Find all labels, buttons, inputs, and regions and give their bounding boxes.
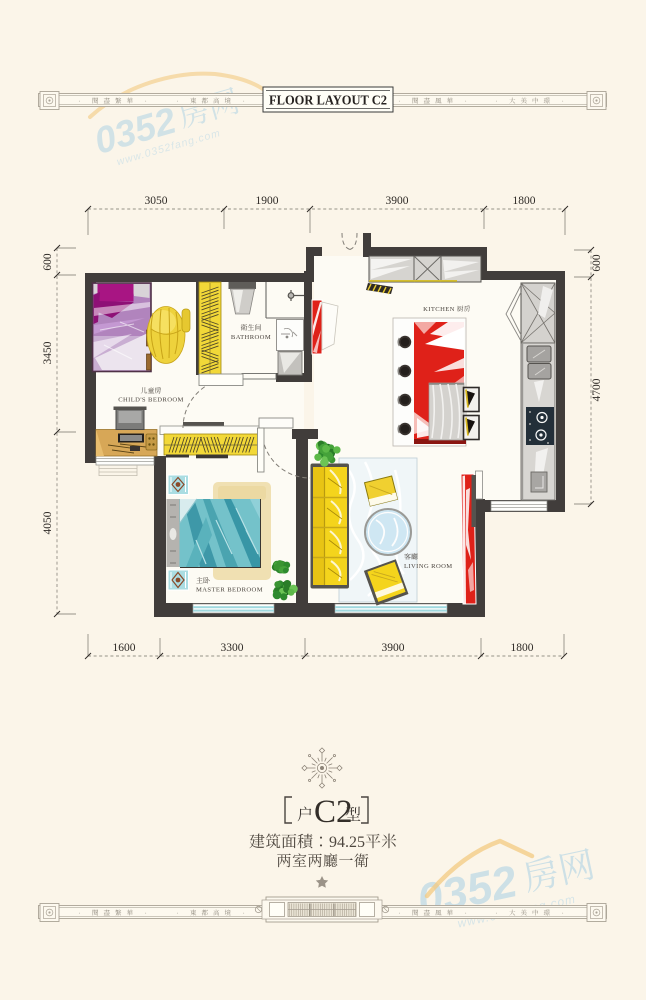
svg-text:4700: 4700	[591, 378, 603, 401]
svg-text:· 大美中璟 ·: · 大美中璟 ·	[495, 96, 569, 105]
svg-text:· 閱盡繁華 ·: · 閱盡繁華 ·	[78, 908, 152, 917]
svg-text:儿童房: 儿童房	[141, 386, 162, 396]
svg-text:BATHROOM: BATHROOM	[231, 334, 271, 341]
svg-text:建筑面積：94.25平米: 建筑面積：94.25平米	[249, 829, 397, 852]
svg-text:· 閱盡風華 ·: · 閱盡風華 ·	[398, 908, 472, 917]
svg-text:户: 户	[297, 802, 313, 825]
svg-text:3050: 3050	[145, 195, 168, 207]
svg-text:LIVING ROOM: LIVING ROOM	[404, 563, 453, 570]
svg-text:4050: 4050	[42, 511, 54, 534]
svg-text:· 東都高境 ·: · 東都高境 ·	[176, 96, 250, 105]
svg-text:1800: 1800	[511, 642, 534, 654]
svg-text:1600: 1600	[113, 642, 136, 654]
svg-text:· 閱盡繁華 ·: · 閱盡繁華 ·	[78, 96, 152, 105]
svg-text:3450: 3450	[42, 341, 54, 364]
svg-text:3900: 3900	[386, 195, 409, 207]
svg-text:600: 600	[42, 253, 54, 271]
svg-text:3900: 3900	[382, 642, 405, 654]
svg-text:衛生间: 衛生间	[241, 323, 262, 333]
svg-text:主卧: 主卧	[196, 576, 210, 586]
svg-text:· 閱盡風華 ·: · 閱盡風華 ·	[398, 96, 472, 105]
svg-text:FLOOR LAYOUT C2: FLOOR LAYOUT C2	[269, 93, 387, 108]
svg-text:3300: 3300	[221, 642, 244, 654]
svg-text:1800: 1800	[513, 195, 536, 207]
svg-text:600: 600	[591, 254, 603, 272]
svg-text:两室两廳一衛: 两室两廳一衛	[276, 850, 369, 871]
svg-text:客廳: 客廳	[404, 552, 418, 562]
svg-text:MASTER BEDROOM: MASTER BEDROOM	[196, 587, 263, 594]
svg-text:· 東都高境 ·: · 東都高境 ·	[176, 908, 250, 917]
svg-text:1900: 1900	[256, 195, 279, 207]
svg-text:· 大美中璟 ·: · 大美中璟 ·	[495, 908, 569, 917]
svg-text:CHILD'S BEDROOM: CHILD'S BEDROOM	[118, 397, 184, 404]
svg-text:型: 型	[345, 802, 361, 825]
